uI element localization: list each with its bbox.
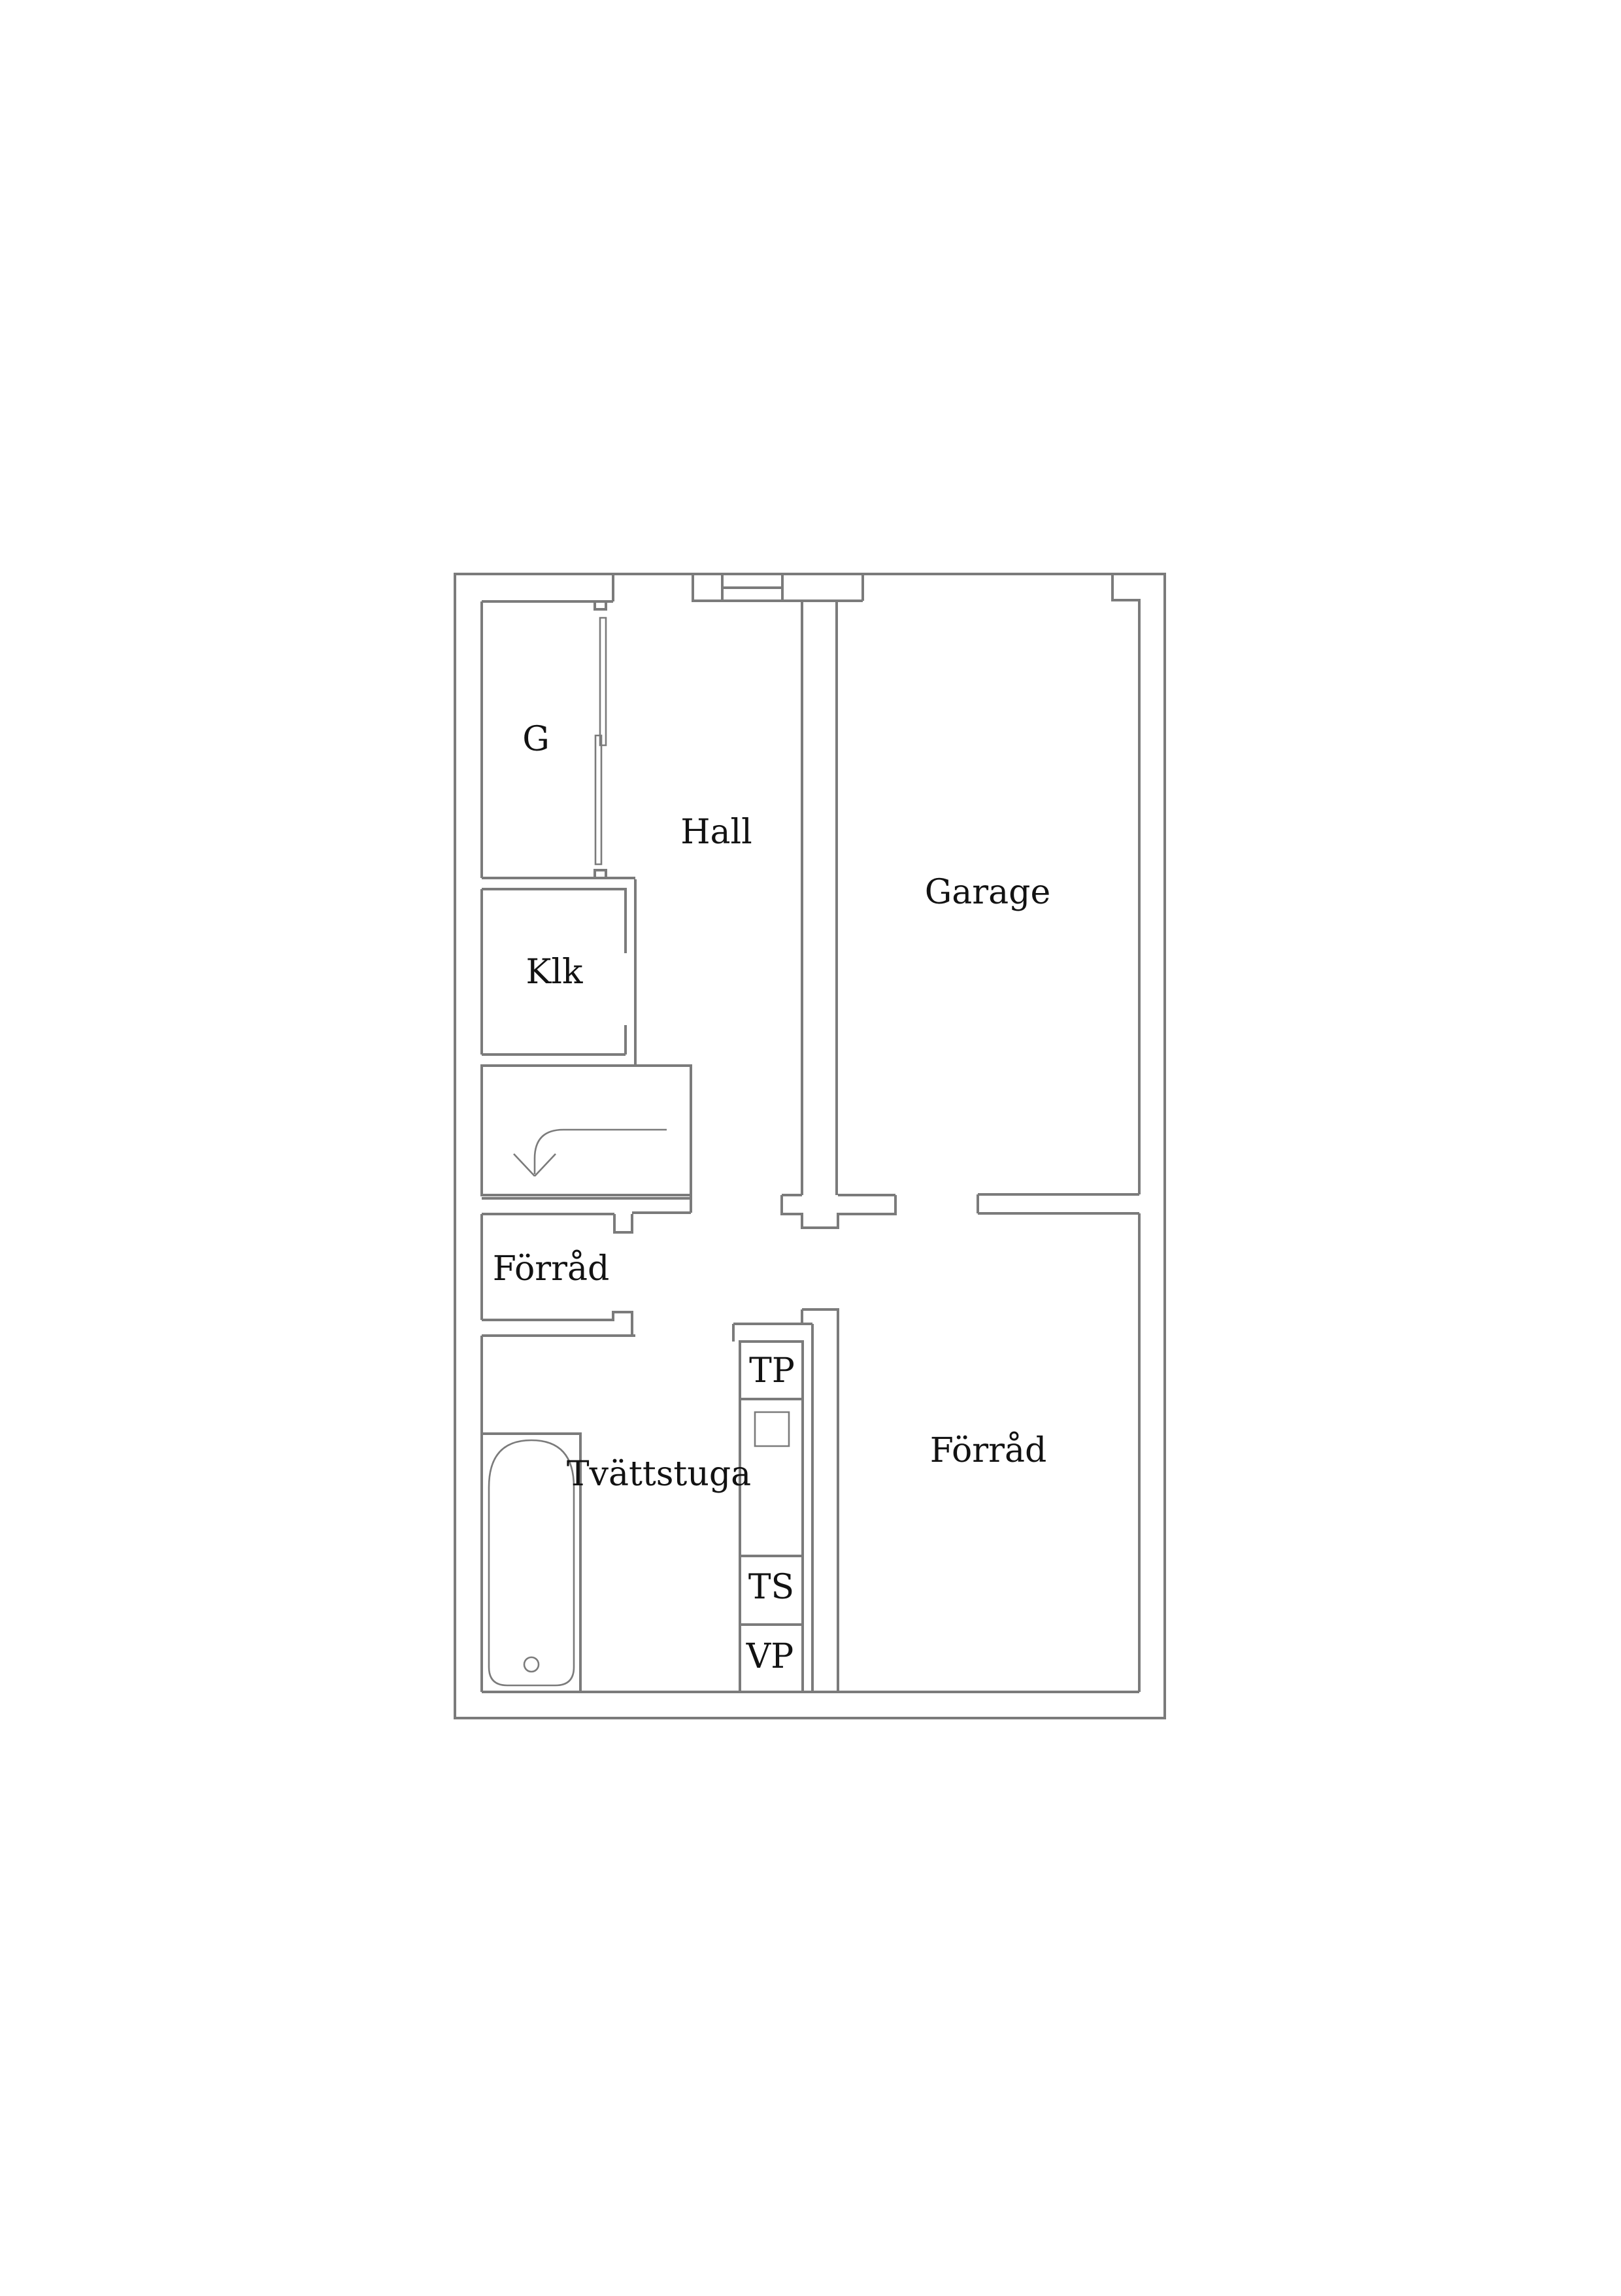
sliding-closet-doors-icon <box>595 618 606 864</box>
floorplan-page: { "floorplan": { "background": "#ffffff"… <box>0 0 1621 2293</box>
bathtub-icon <box>489 1440 574 1685</box>
staircase-walls <box>482 1066 691 1213</box>
entry-vestibule <box>693 574 863 601</box>
floorplan-drawing <box>0 0 1621 2293</box>
hall-garage-wall <box>802 601 837 1195</box>
garage-bottom-wall <box>978 1194 1139 1213</box>
room-label-hall: Hall <box>680 815 752 849</box>
room-label-tvattstuga: Tvättstuga <box>567 1457 751 1491</box>
room-label-klk: Klk <box>526 955 583 989</box>
outer-wall <box>455 574 1165 1718</box>
bathtub-drain-icon <box>524 1657 539 1672</box>
g-room-walls <box>482 574 635 878</box>
tvattstuga-walls <box>482 1336 580 1692</box>
hall-bottom-junction <box>782 1195 895 1228</box>
room-label-forrad-right: Förråd <box>930 1434 1047 1468</box>
utility-column-right-wall <box>802 1309 838 1692</box>
room-label-g: G <box>522 722 550 756</box>
room-label-tp: TP <box>749 1354 795 1388</box>
washing-machine-square-icon <box>755 1412 789 1446</box>
right-wall-inner-edge <box>1112 574 1139 1692</box>
room-label-vp: VP <box>746 1640 794 1674</box>
staircase-down-arrow-icon <box>514 1130 667 1176</box>
room-label-ts: TS <box>748 1570 794 1604</box>
room-label-garage: Garage <box>925 875 1050 909</box>
floorplan-canvas: G Hall Garage Klk Förråd Tvättstuga Förr… <box>0 0 1621 2293</box>
room-label-forrad-left: Förråd <box>493 1252 610 1286</box>
